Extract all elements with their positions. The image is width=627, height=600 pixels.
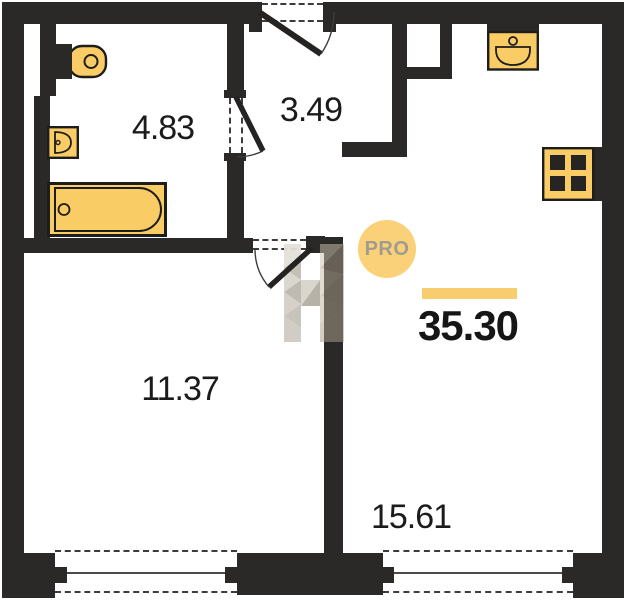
- entry-door-arc: [321, 12, 334, 54]
- room-label-kitchen-living: 15.61: [351, 497, 471, 537]
- room-label-bathroom: 4.83: [103, 108, 223, 148]
- total-area-label: 35.30: [398, 304, 538, 348]
- living-door-arc: [255, 250, 269, 287]
- floor-plan: 4.83 3.49 11.37 15.61 PRO 35.30: [0, 0, 627, 600]
- pro-badge: PRO: [358, 220, 416, 278]
- bathroom-door-arc: [237, 151, 263, 157]
- room-label-hallway: 3.49: [251, 90, 371, 130]
- entry-door-leaf: [259, 12, 321, 54]
- living-door-leaf: [269, 248, 312, 287]
- room-label-living-room: 11.37: [120, 369, 240, 409]
